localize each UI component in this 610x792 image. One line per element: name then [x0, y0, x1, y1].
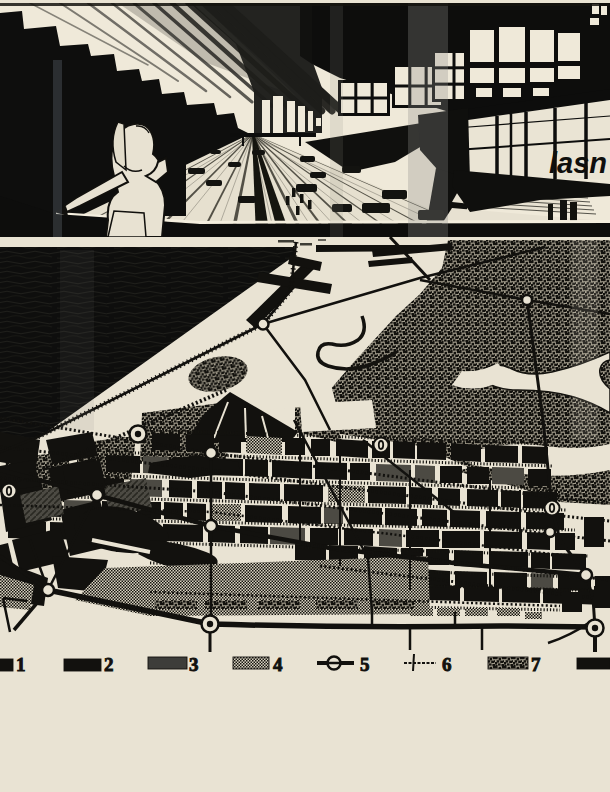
svg-text:lasn: lasn [549, 147, 607, 179]
svg-text:7: 7 [531, 654, 541, 675]
svg-text:6: 6 [442, 654, 452, 675]
svg-text:3: 3 [189, 654, 199, 675]
svg-text:2: 2 [104, 654, 114, 675]
svg-text:5: 5 [360, 654, 370, 675]
svg-text:4: 4 [273, 654, 283, 675]
svg-text:1: 1 [16, 654, 26, 675]
